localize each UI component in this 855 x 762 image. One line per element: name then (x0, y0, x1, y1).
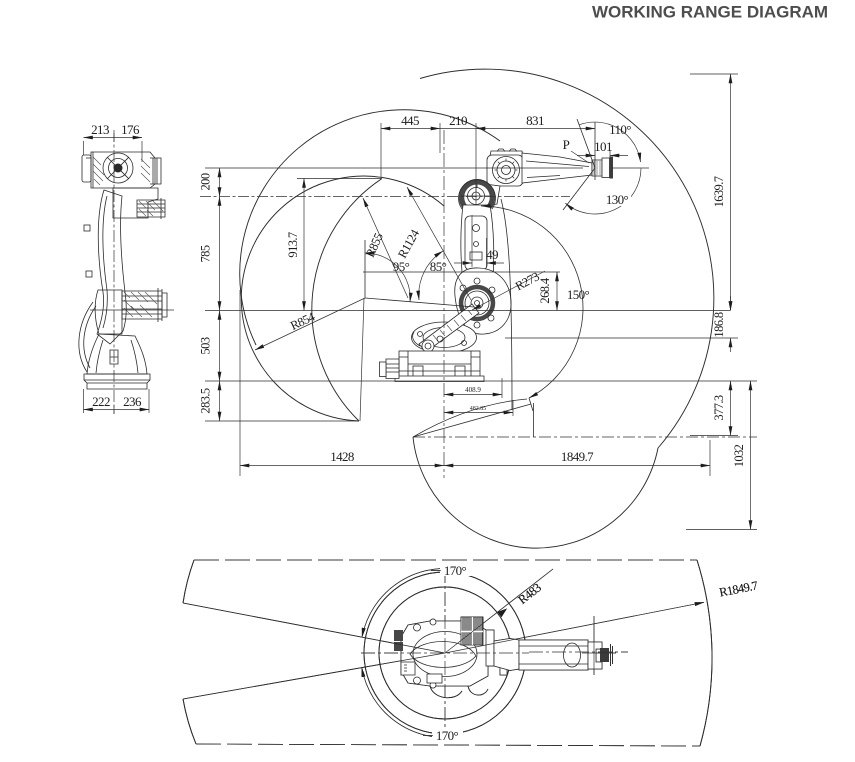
svg-text:170°: 170° (444, 563, 467, 578)
svg-text:408.9: 408.9 (465, 386, 481, 394)
svg-text:49: 49 (486, 247, 498, 262)
svg-text:1849.7: 1849.7 (561, 449, 594, 464)
svg-text:200: 200 (199, 173, 213, 190)
svg-text:176: 176 (121, 122, 140, 137)
svg-text:130°: 130° (606, 192, 629, 207)
svg-text:210: 210 (449, 113, 467, 128)
svg-text:P: P (563, 137, 570, 152)
svg-text:222: 222 (92, 394, 110, 409)
svg-text:445: 445 (401, 113, 419, 128)
svg-text:503: 503 (199, 337, 213, 354)
svg-text:831: 831 (526, 113, 544, 128)
svg-text:95°: 95° (393, 259, 410, 274)
svg-text:236: 236 (123, 394, 142, 409)
svg-text:WORKING RANGE DIAGRAM: WORKING RANGE DIAGRAM (592, 3, 828, 22)
svg-text:170°: 170° (436, 728, 459, 743)
svg-text:101: 101 (594, 139, 612, 154)
svg-text:186.8: 186.8 (712, 312, 726, 337)
svg-text:110°: 110° (609, 122, 631, 137)
svg-text:1639.7: 1639.7 (712, 176, 726, 207)
svg-text:1428: 1428 (330, 449, 354, 464)
svg-text:785: 785 (199, 245, 213, 262)
svg-text:150°: 150° (567, 287, 590, 302)
svg-text:1032: 1032 (732, 444, 746, 467)
svg-text:283.5: 283.5 (199, 388, 213, 413)
svg-text:377.3: 377.3 (712, 395, 726, 420)
svg-text:213: 213 (91, 122, 109, 137)
svg-text:913.7: 913.7 (286, 232, 300, 257)
